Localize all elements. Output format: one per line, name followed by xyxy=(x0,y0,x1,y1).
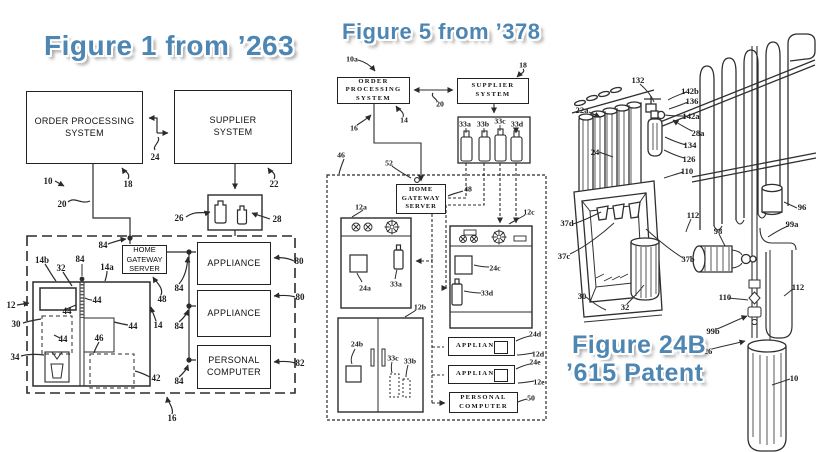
fig1-appliance-box-1: APPLIANCE xyxy=(197,242,271,285)
fig1-order-processing-box: ORDER PROCESSING SYSTEM xyxy=(26,91,143,164)
nozzle xyxy=(613,204,624,219)
tube-fittings xyxy=(748,280,761,325)
fig2-home-gateway-box: HOME GATEWAY SERVER xyxy=(396,184,446,214)
fig2-appliance-d-module xyxy=(494,341,508,354)
bottle-icon xyxy=(215,201,226,223)
knob-icon xyxy=(352,223,372,231)
fig3-mechanical-drawing xyxy=(570,34,816,451)
bottle-rack-icons xyxy=(461,129,522,161)
burner-icon xyxy=(492,230,507,245)
cup-icon xyxy=(51,364,63,378)
cup xyxy=(631,238,659,300)
bottle-icon xyxy=(238,206,247,224)
valve-and-cartridge xyxy=(644,96,665,156)
fig2-appliance-box-e: APPLIANCE xyxy=(448,365,515,384)
fig2-supplier-box: SUPPLIER SYSTEM xyxy=(457,78,529,104)
canister-group xyxy=(572,87,654,192)
nozzle xyxy=(629,202,640,218)
fig2-order-processing-box: ORDER PROCESSING SYSTEM xyxy=(337,77,410,104)
fig1-supplier-box: SUPPLIER SYSTEM xyxy=(174,90,292,164)
fig2-personal-computer-box: PERSONAL COMPUTER xyxy=(449,392,518,413)
pump xyxy=(693,246,756,272)
fig2-appliance-box-d: APPLIANCE xyxy=(448,337,515,356)
fig1-title: Figure 1 from ’263 xyxy=(44,30,294,62)
filter-cylinder xyxy=(748,340,786,451)
fig1-personal-computer-box: PERSONAL COMPUTER xyxy=(197,345,271,389)
fig1-appliance-box-2: APPLIANCE xyxy=(197,290,271,337)
dashed-compartment-42 xyxy=(90,354,134,388)
component-96 xyxy=(762,184,782,214)
patent-figures-composite: Figure 1 from ’263 Figure 5 from ’378 Fi… xyxy=(0,0,834,452)
knob-icon xyxy=(460,236,478,243)
fig1-home-gateway-box: HOME GATEWAY SERVER xyxy=(122,245,167,274)
patent-line-art xyxy=(0,0,834,452)
fig1-refrigerator-drawing xyxy=(17,264,156,388)
fig3-title-line2: ’615 Patent xyxy=(566,359,704,388)
condenser-coil-rack xyxy=(650,34,816,230)
dashed-compartment-30 xyxy=(42,316,72,354)
burner-icon xyxy=(385,220,400,235)
fig3-title-line1: Figure 24B xyxy=(572,331,706,360)
fig2-title: Figure 5 from ’378 xyxy=(342,19,541,45)
fig2-appliance-e-module xyxy=(494,369,508,382)
